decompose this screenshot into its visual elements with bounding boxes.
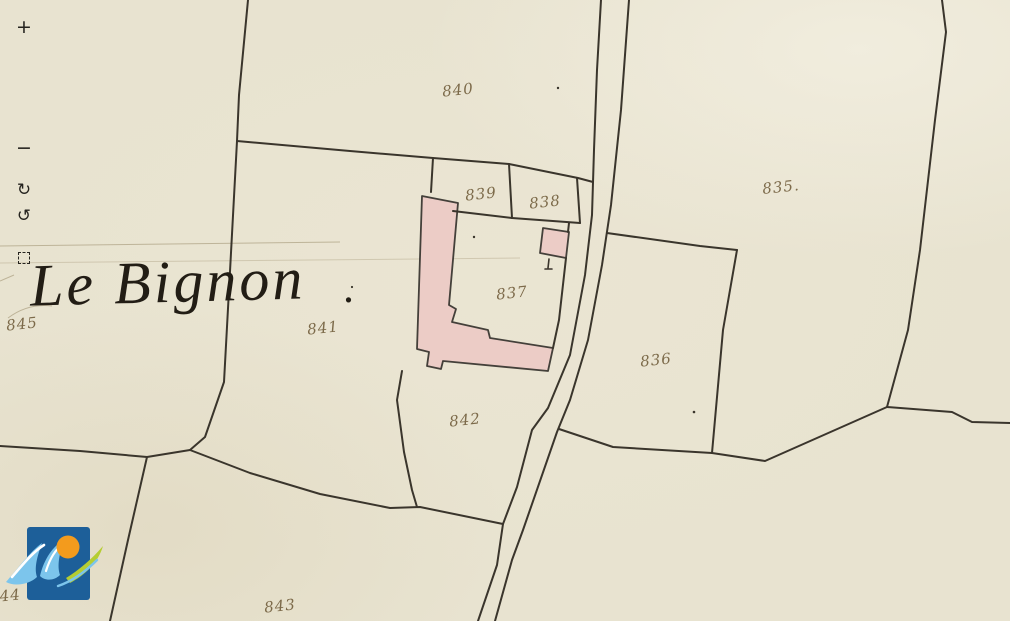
cadastral-map-drawing: [0, 0, 1010, 621]
map-controls: + − ↻ ↺: [0, 0, 48, 300]
zoom-in-button[interactable]: +: [10, 13, 38, 41]
building-main-l-shape: [417, 196, 553, 371]
building-footprints: [417, 196, 569, 371]
cadastral-map-canvas[interactable]: Le Bignon . 840839838835.837836841842843…: [0, 0, 1010, 621]
rotate-clockwise-button[interactable]: ↻: [10, 176, 38, 204]
select-area-icon: [18, 252, 30, 264]
map-viewer: Le Bignon . 840839838835.837836841842843…: [0, 0, 1010, 621]
rotate-counterclockwise-button[interactable]: ↺: [10, 202, 38, 230]
select-area-button[interactable]: [10, 244, 38, 272]
zoom-out-button[interactable]: −: [10, 134, 38, 162]
building-small-square: [540, 228, 569, 258]
parcel-boundaries: [0, 0, 1010, 621]
